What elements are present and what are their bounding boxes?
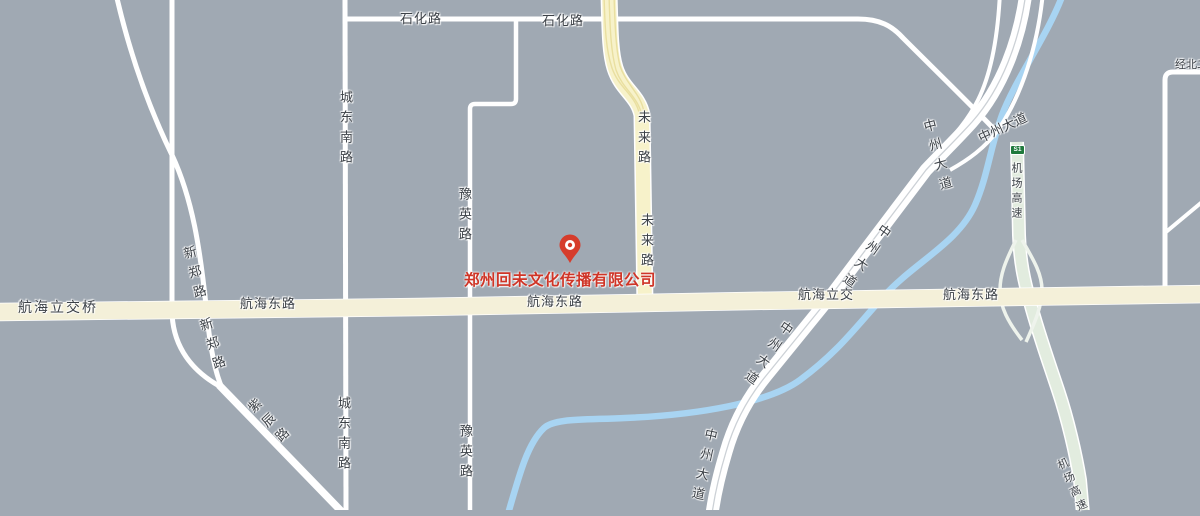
- hanghai-east-road: [0, 294, 1200, 312]
- zichen-road: [219, 385, 344, 510]
- road-label-hanghai-east-3: 航海东路: [943, 288, 999, 301]
- road-label-shihua-2: 石化路: [542, 14, 584, 27]
- road-label-yuying-top: 豫英路: [458, 187, 471, 247]
- road-label-jingbei: 经北二路: [1175, 60, 1200, 71]
- jingbei-road-path: [1165, 72, 1200, 295]
- map-canvas[interactable]: 石化路 石化路 城东南路 城东南路 豫英路 豫英路 未来路 未来路 新郑路 新郑…: [0, 0, 1200, 510]
- airport-expwy: [1017, 142, 1083, 510]
- road-label-shihua-1: 石化路: [400, 12, 442, 25]
- shihua-road: [345, 19, 994, 129]
- road-label-yuying-btm: 豫英路: [459, 424, 472, 484]
- map-page: { "map": { "type": "street-map", "colors…: [0, 0, 1200, 510]
- yuying-road: [470, 18, 516, 510]
- map-roads-layer: [0, 0, 1200, 510]
- poi-company-label[interactable]: 郑州回未文化传播有限公司: [464, 268, 656, 290]
- road-label-weilai-top: 未来路: [637, 110, 650, 170]
- road-label-chengdongnan-top: 城东南路: [339, 90, 352, 170]
- jingbei-branch-road: [1166, 202, 1200, 232]
- road-label-hanghai-east-1: 航海东路: [240, 297, 296, 310]
- road-label-chengdongnan-btm: 城东南路: [337, 396, 350, 476]
- road-label-hanghai-east-2: 航海东路: [527, 295, 583, 308]
- expressway-shield-s1: S1: [1010, 145, 1025, 155]
- road-label-hanghai-lijiaoqiao: 航海立交桥: [18, 300, 98, 314]
- road-label-weilai-btm: 未来路: [640, 213, 653, 273]
- road-label-airport-expwy-top: 机场高速: [1010, 162, 1021, 222]
- river: [508, 0, 1063, 510]
- location-pin-icon[interactable]: [552, 226, 588, 268]
